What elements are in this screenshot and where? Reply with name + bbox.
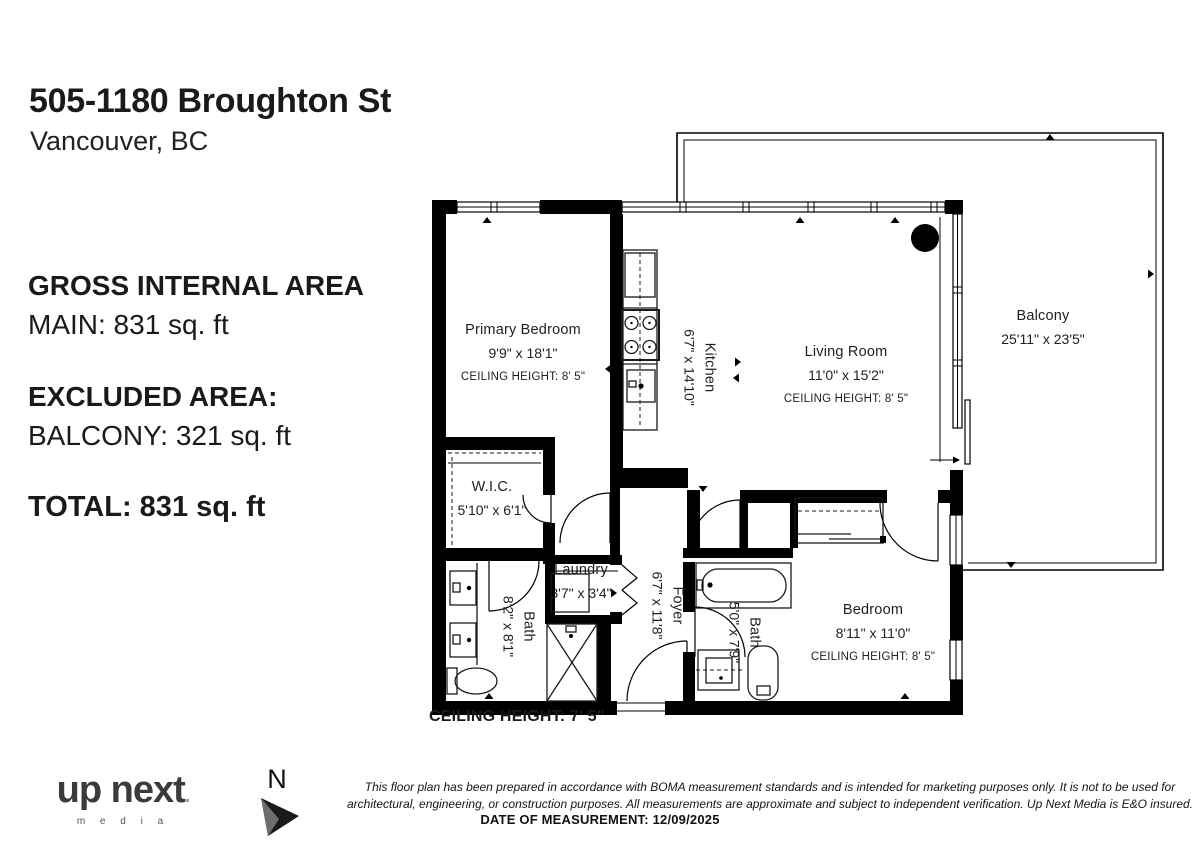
room-dims: 6'7" x 11'8" (649, 540, 667, 672)
north-indicator: N (252, 764, 302, 846)
excluded-area-label: EXCLUDED AREA: (28, 381, 277, 413)
room-dims: 6'7" x 14'10" (681, 293, 699, 443)
disclaimer-line-1: This floor plan has been prepared in acc… (340, 779, 1200, 796)
room-dims: 11'0" x 15'2" (721, 363, 971, 388)
north-label: N (252, 764, 302, 795)
floor-ceiling-note: CEILING HEIGHT: 7' 5" (429, 708, 605, 726)
room-label-kitchen: Kitchen 6'7" x 14'10" (681, 293, 720, 443)
room-dims: 25'11" x 23'5" (930, 327, 1156, 352)
room-dims: 9'9" x 18'1" (398, 341, 648, 366)
room-dims: 8'11" x 11'0" (758, 621, 988, 646)
room-label-living-room: Living Room 11'0" x 15'2" CEILING HEIGHT… (721, 342, 971, 410)
main-area-value: MAIN: 831 sq. ft (28, 309, 229, 341)
room-name: Bath (744, 578, 765, 688)
room-name: Balcony (930, 306, 1156, 327)
room-name: W.I.C. (428, 477, 556, 498)
page-subtitle: Vancouver, BC (30, 126, 208, 157)
room-name: Bath (518, 567, 539, 687)
room-label-primary-bedroom: Primary Bedroom 9'9" x 18'1" CEILING HEI… (398, 320, 648, 388)
total-area-value: TOTAL: 831 sq. ft (28, 491, 265, 524)
room-label-bath-main: Bath 8'2" x 8'1" (500, 567, 539, 687)
date-of-measurement: DATE OF MEASUREMENT: 12/09/2025 (0, 812, 1200, 827)
room-name: Bedroom (758, 600, 988, 621)
floorplan-page: { "header": { "title": "505-1180 Brought… (0, 0, 1200, 848)
room-name: Primary Bedroom (398, 320, 648, 341)
entry-threshold (617, 703, 665, 711)
room-ceiling: CEILING HEIGHT: 8' 5" (721, 388, 971, 410)
room-dims: 5'10" x 6'1" (428, 498, 556, 523)
balcony-area-value: BALCONY: 321 sq. ft (28, 420, 291, 452)
main-bath-vanity (450, 563, 477, 665)
main-bath-toilet (447, 668, 497, 694)
shower (547, 624, 597, 701)
logo-wordmark: up next. (52, 770, 194, 816)
room-ceiling: CEILING HEIGHT: 8' 5" (398, 366, 648, 388)
room-label-foyer: Foyer 6'7" x 11'8" (649, 540, 688, 672)
room-dims: 8'2" x 8'1" (500, 567, 518, 687)
room-dims: 5'0" x 7'9" (726, 578, 744, 688)
room-label-bath-second: Bath 5'0" x 7'9" (726, 578, 765, 688)
room-name: Kitchen (699, 293, 720, 443)
disclaimer-line-2: architectural, engineering, or construct… (340, 796, 1200, 813)
logo-dot: . (185, 785, 190, 807)
room-label-wic: W.I.C. 5'10" x 6'1" (428, 477, 556, 523)
room-name: Foyer (667, 540, 688, 672)
gross-internal-area-label: GROSS INTERNAL AREA (28, 270, 364, 302)
bedroom-closet (792, 498, 886, 543)
room-label-bedroom: Bedroom 8'11" x 11'0" CEILING HEIGHT: 8'… (758, 600, 988, 668)
room-label-balcony: Balcony 25'11" x 23'5" (930, 306, 1156, 352)
room-ceiling: CEILING HEIGHT: 8' 5" (758, 646, 988, 668)
disclaimer-text: This floor plan has been prepared in acc… (340, 779, 1200, 812)
page-title: 505-1180 Broughton St (29, 82, 391, 121)
column (911, 224, 939, 252)
